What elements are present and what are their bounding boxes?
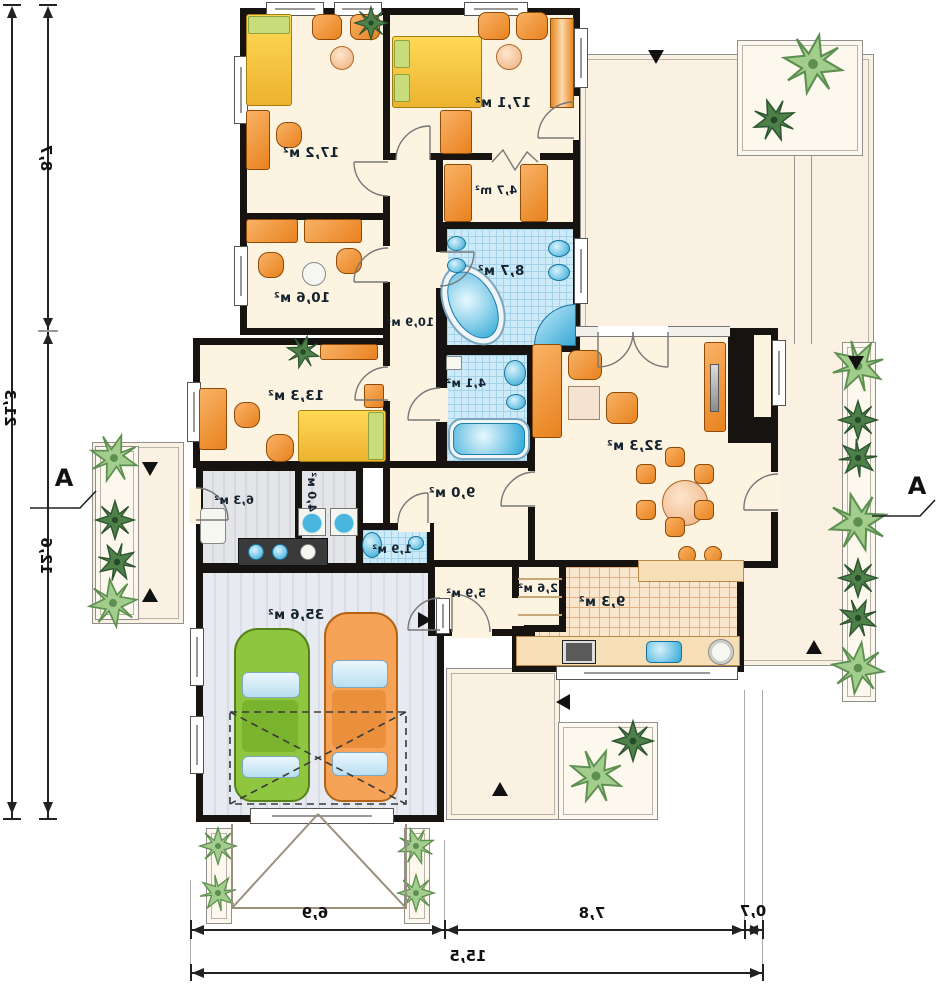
kitchen-sink [646,641,682,663]
dim-line-bottom-inner [190,929,762,931]
window [772,340,786,406]
utility-sink [272,544,288,560]
armchair [478,12,510,40]
door-gap [598,326,668,336]
door-gap [383,160,393,196]
toilet [447,236,466,251]
car-green-roof [242,700,298,752]
sink [506,394,526,410]
wardrobe-cabinet [520,164,548,222]
wall-living-right-foot [752,417,778,443]
desk [199,388,227,450]
window [190,716,204,774]
wardrobe-cabinet [550,18,574,108]
window [574,238,588,304]
dim-bottom-mid: 7,8 [579,904,606,922]
door-gap [383,246,393,282]
water-heater [708,639,734,665]
round-table [330,46,354,70]
room-corridor [383,153,443,468]
utility-sink [248,544,264,560]
entrance-arrow-down [142,462,158,476]
dim-arrow-down [7,802,17,814]
car-green-rear-window [242,756,300,778]
bed-pillow [368,412,384,460]
toilet [504,360,526,386]
dim-arrow-right [750,925,762,935]
washer [298,508,326,536]
label-living-area: 32,3 м² [607,438,663,454]
label-garage-area: 35,6 м² [268,607,324,623]
dim-line-left-inner [47,10,49,818]
dim-arrow-left [192,968,204,978]
chest [440,110,472,154]
dim-arrow-left [446,925,458,935]
cabinet [364,384,384,408]
dim-tick [39,818,57,820]
label-bedroom-3-area: 13,3 м² [268,388,324,404]
dim-bottom-left: 6,9 [302,904,329,922]
plant-dark [95,500,135,540]
label-bedroom-1-area: 17,2 м² [283,145,339,161]
door-gap [512,598,524,626]
label-hallway-area: 5,9 м² [446,586,486,600]
wall-living-right [728,328,754,443]
dim-arrow-right [732,925,744,935]
bed-pillow [394,40,410,68]
dim-arrow-left [192,925,204,935]
plant-light [392,822,440,870]
door-gap [452,626,492,638]
terrace-inner-edge [794,154,812,344]
washer [446,356,462,370]
door-gap [436,388,448,422]
door-gap [398,523,430,532]
dim-arrow-up [7,6,17,18]
cabinet [246,219,298,243]
label-hall-area: 9,0 м² [429,485,476,501]
dim-arrow-down [43,318,53,329]
plant-light [192,867,245,920]
dim-bottom-right: 0,7 [740,902,767,920]
label-wardrobe-area: 4,7 m² [475,183,518,197]
armchair [266,434,294,462]
entrance-arrow-up [492,782,508,796]
label-corridor-area: 10,9 м² [386,315,434,329]
sink [548,264,570,281]
dining-chair [665,447,685,467]
pantry-shelf [518,596,562,598]
boiler [200,508,226,544]
coffee-table [568,386,600,420]
dining-chair [636,464,656,484]
plant-dark [612,720,654,762]
kitchen-counter [516,636,740,666]
entrance-arrow-left [556,694,570,710]
dim-arrow-up [43,6,53,18]
dim-tick [762,920,764,939]
round-table [496,44,522,70]
armchair [312,14,342,40]
label-wc-area: 1,9 м² [372,542,412,556]
plant-dark [354,6,388,40]
utility-basin [300,544,316,560]
window [556,666,738,680]
entrance-arrow-down [848,356,864,370]
window [234,246,248,306]
desk [304,219,362,243]
dim-extension [444,840,445,932]
dim-left-top: 8,7 [37,145,55,172]
dim-arrow-right [432,925,444,935]
dim-arrow-up [43,333,53,344]
section-marker-a-left: A [55,464,74,492]
floor-plan-canvas: 17,2 м² 17,1 м² 4,7 m² 10,6 м² 8,7 м² 10… [0,0,949,1000]
pantry-shelf [518,614,562,616]
label-bathroom-area: 8,7 м² [478,263,525,279]
desk-chair [234,402,260,428]
window [574,28,588,88]
desk-chair [258,252,284,278]
shelf [320,344,378,360]
door-gap [528,471,540,507]
label-utility-area: 6,3 м² [214,493,254,507]
dim-tick [3,818,21,820]
dim-arrow-right [750,968,762,978]
garage-door [250,808,394,824]
entrance-arrow-up [806,640,822,654]
pantry-shelf [518,578,562,580]
plant-light [828,638,889,699]
garage-side-door [436,598,450,634]
car-green-windshield [242,672,300,698]
entrance-arrow-right [418,612,432,628]
driveway-lines [232,814,406,908]
desk [246,110,270,170]
stove [562,640,596,664]
dim-line-bottom-outer [190,972,762,974]
plant-light [85,575,141,631]
dim-bottom-total: 15,5 [449,947,486,965]
armchair [568,350,602,380]
dim-left-bottom: 12,6 [37,537,55,574]
bed-pillow [394,74,410,102]
dining-chair [636,500,656,520]
dim-tick [38,330,58,332]
door-gap [396,153,430,163]
dim-arrow-down [43,802,53,814]
bidet [447,258,466,273]
entrance-arrow-down [648,50,664,64]
label-pantry-area: 2,6 м² [518,581,558,595]
door-gap [492,153,540,163]
wardrobe-cabinet [444,164,472,222]
dining-chair [694,500,714,520]
dining-chair [694,464,714,484]
sofa [532,344,562,438]
window [190,628,204,686]
armchair [606,392,638,424]
entrance-arrow-up [142,588,158,602]
dim-left-total: 21,3 [1,389,19,426]
label-bedroom-2-area: 17,1 м² [475,95,531,111]
car-orange-windshield [332,660,388,688]
car-orange-roof [332,690,386,748]
dim-tick [762,964,764,981]
plant-light [776,27,850,101]
label-bath-area: 4,1 м² [446,376,486,390]
sink [548,240,570,257]
plant-dark [838,558,878,598]
plant-light [397,874,435,912]
dim-extension [744,690,745,932]
section-marker-a-right: A [908,472,927,500]
dining-chair [665,517,685,537]
armchair [516,12,548,40]
tv-screen [710,364,719,412]
car-orange-rear-window [332,752,388,776]
round-table [302,262,326,286]
label-office-area: 10,6 м² [274,290,330,306]
bed-pillow [248,16,290,34]
door-gap [770,472,782,512]
label-laundry-area: 4,0 м² [305,472,319,512]
door-gap [383,366,393,401]
porch-entry [446,668,560,820]
dryer [330,508,358,536]
label-kitchen-area: 9,3 м² [579,594,626,610]
plant-light [199,827,237,865]
desk-chair [336,248,362,274]
bathtub [448,418,530,460]
bar-counter [638,560,744,582]
